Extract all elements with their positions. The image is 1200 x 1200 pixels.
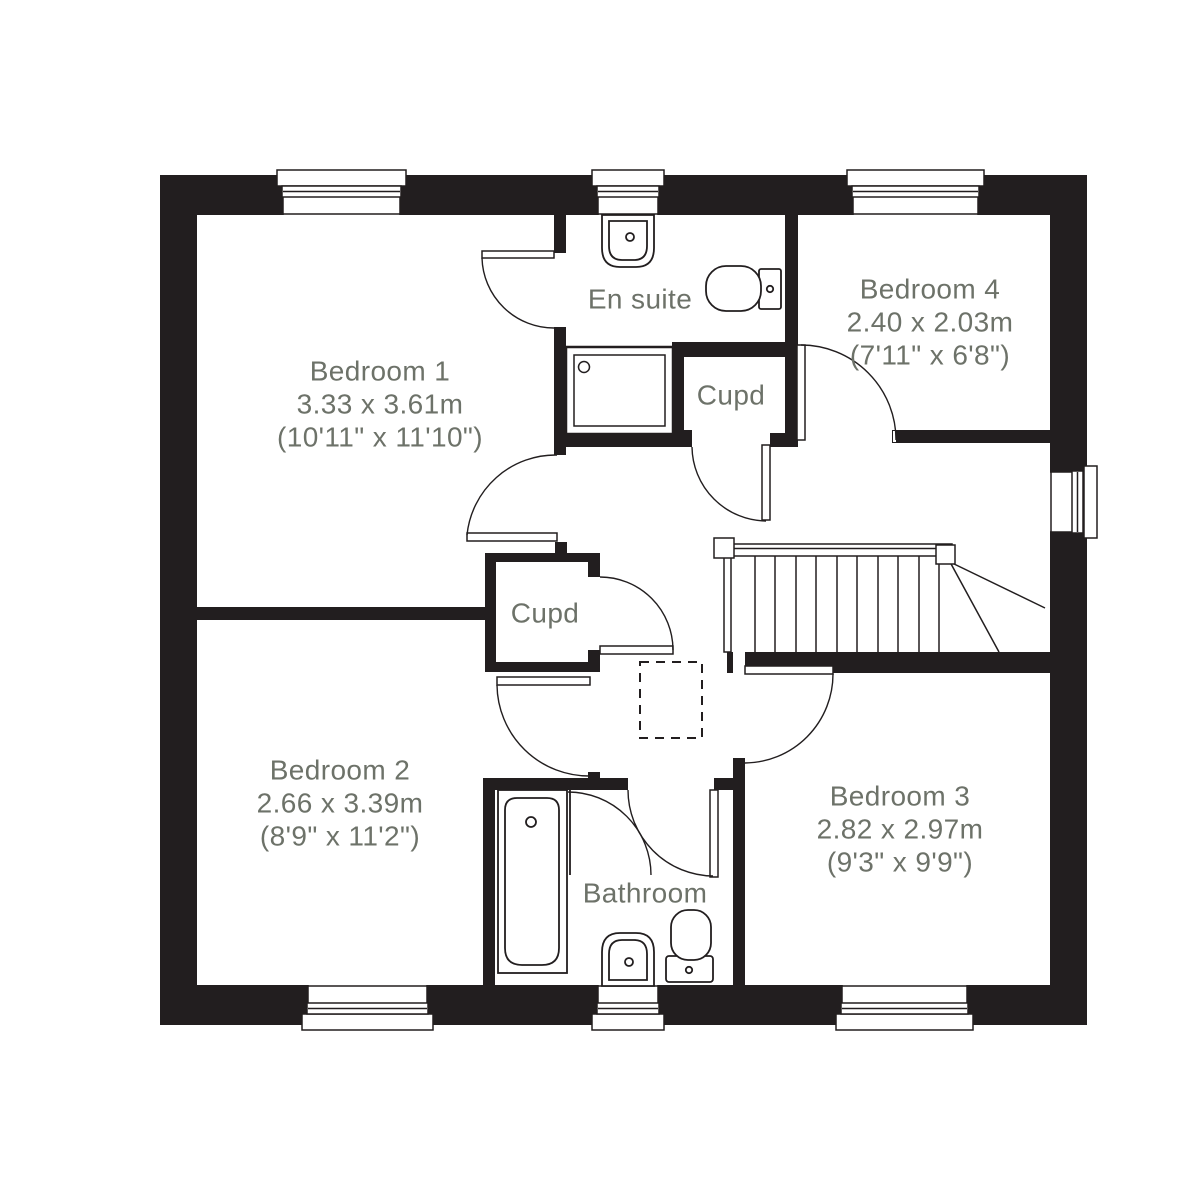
room-name: Bathroom bbox=[583, 877, 708, 910]
window-bedroom2 bbox=[302, 985, 433, 1030]
bathroom-toilet-icon bbox=[666, 910, 713, 982]
room-size-metric: 2.82 x 2.97m bbox=[817, 813, 984, 846]
floorplan-drawing bbox=[0, 0, 1200, 1200]
room-name: Bedroom 3 bbox=[817, 780, 984, 813]
stairs-handrail bbox=[718, 544, 952, 556]
window-bathroom bbox=[592, 985, 664, 1030]
cupboard-top-door bbox=[762, 445, 770, 520]
room-name: Bedroom 1 bbox=[277, 355, 483, 388]
bathroom-basin-icon bbox=[602, 933, 654, 986]
window-landing bbox=[1050, 466, 1097, 538]
winder-tread-line bbox=[950, 562, 999, 652]
bath-screen-arc bbox=[568, 792, 651, 875]
room-label-bedroom1: Bedroom 1 3.33 x 3.61m (10'11" x 11'10") bbox=[277, 355, 483, 454]
ensuite-toilet-icon bbox=[706, 266, 781, 311]
room-size-imperial: (10'11" x 11'10") bbox=[277, 421, 483, 454]
bedroom2-door bbox=[497, 677, 590, 685]
room-name: Cupd bbox=[697, 379, 766, 412]
floorplan-first-floor: Bedroom 1 3.33 x 3.61m (10'11" x 11'10")… bbox=[0, 0, 1200, 1200]
room-size-metric: 2.66 x 3.39m bbox=[257, 787, 424, 820]
shower-icon bbox=[566, 347, 673, 434]
room-size-imperial: (8'9" x 11'2") bbox=[257, 820, 424, 853]
room-label-cupboard-mid: Cupd bbox=[511, 597, 580, 630]
window-bedroom3 bbox=[836, 985, 973, 1030]
stairs bbox=[714, 538, 1045, 652]
bedroom3-door bbox=[745, 666, 833, 674]
room-size-imperial: (7'11" x 6'8") bbox=[847, 339, 1014, 372]
ensuite-basin-icon bbox=[602, 215, 654, 267]
bedroom1-door bbox=[467, 533, 557, 541]
winder-tread-line bbox=[950, 562, 1045, 608]
window-bedroom4 bbox=[847, 170, 984, 215]
cupboard-mid-doorway bbox=[588, 577, 600, 650]
room-label-cupboard-top: Cupd bbox=[697, 379, 766, 412]
room-name: Bedroom 4 bbox=[847, 273, 1014, 306]
room-name: Cupd bbox=[511, 597, 580, 630]
room-name: En suite bbox=[588, 283, 692, 316]
room-label-bedroom4: Bedroom 4 2.40 x 2.03m (7'11" x 6'8") bbox=[847, 273, 1014, 372]
room-size-metric: 2.40 x 2.03m bbox=[847, 306, 1014, 339]
ensuite-door bbox=[482, 251, 554, 258]
stairs-newel-post bbox=[714, 538, 734, 558]
bedroom4-door bbox=[797, 345, 805, 440]
room-label-bedroom3: Bedroom 3 2.82 x 2.97m (9'3" x 9'9") bbox=[817, 780, 984, 879]
cupboard-mid-door bbox=[600, 646, 673, 654]
room-size-imperial: (9'3" x 9'9") bbox=[817, 846, 984, 879]
window-ensuite bbox=[592, 170, 664, 215]
room-size-metric: 3.33 x 3.61m bbox=[277, 388, 483, 421]
loft-hatch bbox=[640, 662, 702, 738]
bathtub-icon bbox=[498, 790, 570, 973]
stairs-newel-post bbox=[936, 545, 955, 564]
room-label-bathroom: Bathroom bbox=[583, 877, 708, 910]
room-label-ensuite: En suite bbox=[588, 283, 692, 316]
bathroom-door bbox=[710, 790, 718, 877]
room-label-bedroom2: Bedroom 2 2.66 x 3.39m (8'9" x 11'2") bbox=[257, 754, 424, 853]
room-name: Bedroom 2 bbox=[257, 754, 424, 787]
window-bedroom1 bbox=[277, 170, 406, 215]
